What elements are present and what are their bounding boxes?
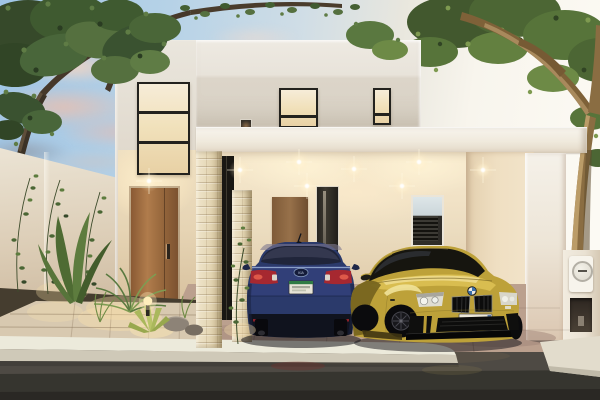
top-branch-leaves — [180, 2, 360, 20]
yellow-coupe: 1SB-652-B — [351, 246, 523, 352]
coupe-kidney-grille-right — [474, 295, 492, 312]
coupe-rear-wheel — [352, 305, 379, 332]
sedan-antenna — [298, 234, 301, 243]
sedan-mirror-left — [242, 264, 250, 270]
sedan-mirror-right — [352, 264, 360, 270]
left-tree-foliage — [0, 0, 408, 146]
coupe-side-scoop-left — [408, 316, 432, 334]
foreground-items: KIA — [0, 0, 600, 400]
exterior-render-scene: KIA — [0, 0, 600, 400]
kia-badge-text: KIA — [298, 271, 304, 275]
blue-sedan: KIA — [241, 234, 361, 349]
